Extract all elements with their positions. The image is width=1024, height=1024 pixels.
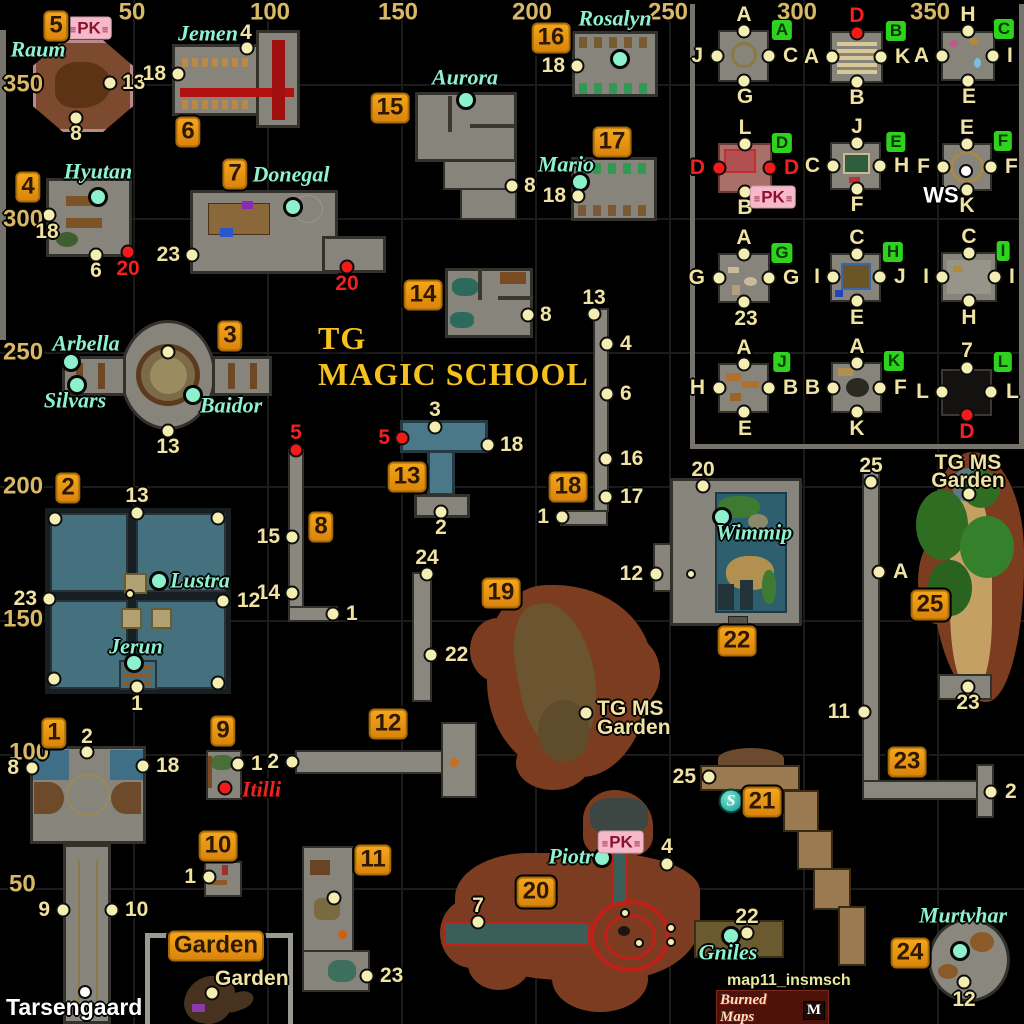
map-dot	[283, 197, 303, 217]
map-dot	[285, 755, 300, 770]
area-badge-23: 23	[886, 745, 929, 780]
map-dot	[936, 160, 951, 175]
room-22-ruin-2	[740, 580, 753, 610]
room-3-pillar-3	[228, 363, 235, 389]
area-badge-22: 22	[716, 624, 759, 659]
teleport-badge-i: I	[997, 241, 1010, 261]
map-dot	[666, 937, 676, 947]
label-rosalyn: Rosalyn	[578, 8, 651, 30]
map-dot	[960, 361, 975, 376]
room-11-item	[338, 930, 347, 939]
room-14-inner-wall-h	[498, 296, 533, 300]
label-j: J	[851, 116, 863, 137]
area-badge-1: 1	[39, 716, 68, 751]
map-dot	[105, 903, 120, 918]
corridor-12-item	[450, 758, 459, 767]
cave-20-center	[618, 926, 630, 936]
label-a: A	[893, 561, 908, 582]
map-dot	[872, 565, 887, 580]
map-dot	[48, 512, 63, 527]
map-dot	[185, 248, 200, 263]
label-18: 18	[543, 185, 566, 206]
cave-20-dark-patch	[590, 798, 648, 834]
label-2: 2	[81, 726, 93, 747]
gridline-vertical	[267, 0, 269, 1024]
teleport-badge-h: H	[883, 242, 903, 262]
room-16-bed-row-top	[579, 37, 651, 48]
label-1: 1	[346, 603, 358, 624]
pk-badge: PK	[599, 832, 643, 853]
map-canvas: TG MAGIC SCHOOL map11_insmsch Burned Map…	[0, 0, 1024, 1024]
cave-20-west-passage	[444, 922, 590, 946]
room-7-purple-item	[242, 201, 253, 209]
label-donegal: Donegal	[253, 164, 330, 186]
brand-mark-icon: M	[803, 1001, 825, 1020]
map-title-line2: MAGIC SCHOOL	[318, 358, 589, 390]
label-f: F	[894, 377, 907, 398]
room-10-item	[222, 865, 228, 875]
map-dot	[620, 908, 630, 918]
area-badge-12: 12	[367, 707, 410, 742]
room-14-inner-wall-v	[478, 268, 482, 300]
teleport-room-c-speck-1	[949, 40, 958, 47]
label-g: G	[689, 267, 705, 288]
label-16: 16	[620, 448, 643, 469]
room-7-blue-item	[220, 228, 233, 237]
label-e: E	[850, 307, 864, 328]
cave-25-tree-2	[960, 516, 1014, 578]
room-3-mosaic	[150, 357, 187, 394]
label-arbella: Arbella	[52, 333, 119, 355]
area-badge-6: 6	[173, 115, 202, 150]
map-dot	[857, 705, 872, 720]
map-dot	[326, 607, 341, 622]
label-11: 11	[828, 701, 850, 722]
label-a: A	[736, 4, 751, 25]
map-dot	[216, 594, 231, 609]
map-dot	[161, 345, 176, 360]
room-4-green-rug	[56, 232, 78, 247]
area-badge-19: 19	[480, 576, 523, 611]
room-1-stair-east	[111, 782, 141, 814]
map-dot	[984, 385, 999, 400]
label-25: 25	[673, 766, 696, 787]
room-9-bench	[208, 756, 212, 788]
label-6: 6	[620, 383, 632, 404]
label-350: 350	[910, 1, 950, 25]
label-10: 10	[125, 899, 148, 920]
room-15-inner-wall-v	[448, 96, 452, 132]
teleport-room-g-bone-2	[744, 277, 757, 286]
teleport-room-j-debris-1	[726, 373, 741, 381]
map-dot	[712, 381, 727, 396]
map-dot	[481, 438, 496, 453]
map-dot	[850, 26, 865, 41]
room-6-bench-row-top	[182, 58, 248, 67]
teleport-badge-j: J	[773, 352, 790, 372]
label-23: 23	[380, 965, 403, 986]
teleport-room-g-bone-3	[732, 285, 740, 295]
corridor-12-east-room	[441, 722, 477, 798]
map-dot	[762, 271, 777, 286]
label-250: 250	[3, 341, 43, 365]
map-dot	[103, 76, 118, 91]
room-4-table-bottom	[66, 218, 102, 228]
label-23: 23	[157, 244, 180, 265]
map-dot	[171, 67, 186, 82]
teleport-grid-bottom-wall	[690, 444, 1024, 449]
label-1: 1	[537, 506, 549, 527]
map-dot	[202, 870, 217, 885]
label-1: 1	[184, 866, 196, 887]
label-hyutan: Hyutan	[64, 161, 132, 183]
map-dot	[762, 381, 777, 396]
room-22-palm	[762, 570, 776, 604]
map-dot	[125, 589, 135, 599]
area-badge-13: 13	[386, 460, 429, 495]
map-dot	[874, 50, 889, 65]
label-d: D	[784, 157, 799, 178]
label-23: 23	[14, 588, 37, 609]
teleport-room-b-pews	[837, 39, 877, 74]
room-15-inner-wall-h	[470, 124, 514, 128]
teleport-room-c-speck-2	[969, 38, 979, 45]
map-dot	[579, 706, 594, 721]
label-20: 20	[691, 459, 714, 480]
label-garden: Garden	[931, 470, 1005, 491]
stairs-21-step-1	[783, 790, 819, 832]
label-e: E	[962, 86, 976, 107]
corridor-23-south	[862, 780, 979, 800]
label-20: 20	[335, 273, 358, 294]
teleport-room-i-speck	[953, 266, 962, 272]
area-badge-5: 5	[41, 9, 70, 44]
area-badge-11: 11	[352, 843, 393, 878]
area-badge-4: 4	[13, 170, 42, 205]
teleport-badge-k: K	[884, 351, 904, 371]
teleport-badge-c: C	[994, 19, 1014, 39]
map-dot	[826, 159, 841, 174]
label-6: 6	[90, 260, 102, 281]
label-50: 50	[9, 873, 36, 897]
map-dot	[600, 387, 615, 402]
map-dot	[986, 49, 1001, 64]
label-15: 15	[257, 526, 280, 547]
label-50: 50	[119, 1, 146, 25]
label-350: 350	[3, 73, 43, 97]
room-11-teal-rug	[328, 960, 356, 982]
map-dot	[505, 179, 520, 194]
map-dot	[428, 420, 443, 435]
map-dot	[873, 270, 888, 285]
label-150: 150	[3, 608, 43, 632]
label-24: 24	[415, 547, 438, 568]
label-b: B	[805, 377, 820, 398]
label-12: 12	[237, 590, 260, 611]
map-dot	[555, 510, 570, 525]
teleport-room-j-debris-3	[730, 393, 741, 401]
teleport-room-h-item	[835, 290, 843, 297]
label-aurora: Aurora	[432, 67, 498, 89]
area-badge-8: 8	[306, 510, 335, 545]
stairs-21-step-3	[813, 868, 851, 910]
map-dot	[42, 592, 57, 607]
label-25: 25	[859, 455, 882, 476]
teleport-badge-b: B	[886, 21, 906, 41]
label-piotr: Piotr	[548, 846, 593, 868]
map-dot	[218, 781, 233, 796]
label-h: H	[690, 377, 705, 398]
label-18: 18	[500, 434, 523, 455]
label-j: J	[894, 266, 906, 287]
label-g: G	[737, 86, 753, 107]
teleport-room-d-rug	[724, 149, 756, 173]
map-dot	[571, 189, 586, 204]
label-garden: Garden	[215, 968, 289, 989]
label-f: F	[851, 194, 864, 215]
label-c: C	[805, 155, 820, 176]
teleport-badge-e: E	[886, 132, 905, 152]
map-dot	[211, 511, 226, 526]
stairs-21-step-4	[838, 906, 866, 966]
room-3-pillar-4	[250, 363, 257, 389]
label-k: K	[959, 195, 974, 216]
map-dot	[826, 270, 841, 285]
label-a: A	[914, 45, 929, 66]
room-14-teal-rug-top	[452, 278, 478, 296]
credits-box: Burned Maps M Ver. 1.9.7 - 01	[716, 990, 829, 1024]
room-2-entry-step-2	[124, 673, 152, 677]
label-8: 8	[7, 757, 19, 778]
label-1: 1	[131, 693, 143, 714]
label-7: 7	[961, 340, 973, 361]
label-l: L	[1006, 381, 1019, 402]
cave-20-north-passage	[612, 846, 628, 906]
label-8: 8	[540, 304, 552, 325]
map-dot	[702, 770, 717, 785]
label-18: 18	[143, 63, 166, 84]
label-13: 13	[582, 287, 605, 308]
teleport-badge-g: G	[771, 243, 792, 263]
label-a: A	[849, 336, 864, 357]
label-a: A	[736, 227, 751, 248]
label-150: 150	[378, 1, 418, 25]
map-dot	[950, 941, 970, 961]
label-9: 9	[38, 899, 50, 920]
teleport-grid-right-wall	[1019, 4, 1024, 449]
label-5: 5	[378, 427, 390, 448]
garden-wall-west	[145, 935, 150, 1024]
label-baidor: Baidor	[200, 395, 262, 417]
label-lustra: Lustra	[170, 570, 230, 592]
label-4: 4	[620, 333, 632, 354]
label-jerun: Jerun	[109, 636, 163, 658]
area-badge-24: 24	[889, 936, 932, 971]
label-mario: Mario	[538, 154, 594, 176]
label-d: D	[849, 5, 864, 26]
map-dot	[231, 757, 246, 772]
room-2-quad-nw	[50, 513, 128, 592]
label-itilli: Itilli	[242, 779, 281, 801]
map-dot	[825, 50, 840, 65]
teleport-room-h-pit	[841, 263, 871, 290]
label-23: 23	[956, 692, 979, 713]
label-8: 8	[524, 175, 536, 196]
map-dot	[984, 785, 999, 800]
label-4: 4	[661, 836, 673, 857]
garden-flower-1	[192, 1004, 205, 1012]
label-h: H	[961, 307, 976, 328]
label-18: 18	[542, 55, 565, 76]
label-2: 2	[267, 751, 279, 772]
label-8: 8	[70, 123, 82, 144]
label-c: C	[783, 45, 798, 66]
map-dot	[666, 923, 676, 933]
stairs-21-step-2	[797, 830, 833, 870]
label-c: C	[849, 227, 864, 248]
room-14-wood-shelf	[500, 272, 526, 284]
map-dot	[149, 571, 169, 591]
label-k: K	[895, 46, 910, 67]
label-b: B	[849, 87, 864, 108]
map-dot	[634, 938, 644, 948]
map-dot	[600, 337, 615, 352]
map-dot	[599, 452, 614, 467]
area-badge-16: 16	[530, 21, 573, 56]
label-4: 4	[240, 22, 252, 43]
teleport-room-e-table	[843, 153, 870, 174]
area-badge-14: 14	[402, 278, 445, 313]
area-badge-9: 9	[208, 714, 237, 749]
room-14-teal-rug-bottom	[450, 312, 474, 328]
teleport-room-a-rug	[731, 42, 757, 68]
room-2-altar-sw	[121, 608, 142, 629]
teleport-badge-a: A	[772, 20, 792, 40]
label-ws: WS	[923, 185, 958, 207]
label-23: 23	[734, 308, 757, 329]
label-18: 18	[35, 221, 58, 242]
teleport-room-g-bone-1	[728, 267, 739, 273]
area-badge-garden: Garden	[166, 929, 266, 964]
teleport-badge-d: D	[772, 133, 792, 153]
map-dot	[873, 381, 888, 396]
label-13: 13	[125, 485, 148, 506]
label-tarsengaard: Tarsengaard	[6, 996, 142, 1019]
label-h: H	[894, 155, 909, 176]
area-badge-20: 20	[515, 875, 558, 910]
label-12: 12	[620, 563, 643, 584]
map-dot	[47, 672, 62, 687]
label-1: 1	[251, 753, 263, 774]
map-dot	[988, 270, 1003, 285]
area-badge-3: 3	[215, 319, 244, 354]
label-100: 100	[250, 1, 290, 25]
area-badge-7: 7	[220, 157, 249, 192]
label-l: L	[739, 117, 752, 138]
room-1-stair-west	[34, 782, 64, 814]
label-l: L	[916, 381, 929, 402]
label-j: J	[691, 45, 703, 66]
room-17-bed-row-bottom	[578, 205, 650, 216]
room-22-ruin-1	[718, 584, 734, 610]
map-dot	[56, 903, 71, 918]
map-dot	[935, 49, 950, 64]
room-24-rust-2	[938, 964, 958, 979]
map-dot	[686, 569, 696, 579]
gridline-vertical	[401, 0, 403, 1024]
map-dot	[360, 969, 375, 984]
map-dot	[710, 49, 725, 64]
room-6-bench-row-bottom	[182, 100, 248, 109]
pk-badge: PK	[751, 187, 795, 208]
map-dot	[826, 381, 841, 396]
label-a: A	[804, 46, 819, 67]
map-dot	[660, 857, 675, 872]
label-e: E	[960, 117, 974, 138]
area-badge-15: 15	[369, 91, 412, 126]
label-k: K	[849, 418, 864, 439]
label-200: 200	[3, 475, 43, 499]
map-dot	[285, 530, 300, 545]
map-dot	[712, 161, 727, 176]
map-dot	[763, 161, 778, 176]
label-22: 22	[445, 644, 468, 665]
area-badge-10: 10	[197, 829, 240, 864]
map-dot	[136, 759, 151, 774]
pk-badge: PK	[67, 18, 111, 39]
room-3-pillar-2	[98, 363, 105, 389]
map-dot	[935, 270, 950, 285]
room-24-rust-1	[970, 932, 994, 952]
label-i: I	[814, 266, 820, 287]
map-dot	[984, 160, 999, 175]
area-badge-2: 2	[53, 471, 82, 506]
room-3-east-wing	[212, 356, 272, 396]
label-2: 2	[1005, 781, 1017, 802]
area-badge-25: 25	[909, 588, 952, 623]
room-7-big-table	[208, 203, 270, 235]
label-17: 17	[620, 486, 643, 507]
teleport-badge-l: L	[994, 352, 1012, 372]
room-11-crate	[310, 860, 330, 875]
map-dot	[130, 506, 145, 521]
room-6-altar-carpet	[272, 40, 285, 120]
label-b: B	[783, 377, 798, 398]
label-wimmip: Wimmip	[716, 522, 792, 544]
map-dot	[456, 90, 476, 110]
map-dot	[712, 271, 727, 286]
map-dot	[873, 159, 888, 174]
teleport-badge-f: F	[994, 131, 1012, 151]
corridor-24	[412, 572, 432, 702]
label-i: I	[1007, 45, 1013, 66]
area-badge-18: 18	[547, 470, 590, 505]
label-jemen: Jemen	[178, 23, 238, 45]
label-a: A	[736, 337, 751, 358]
map-dot	[327, 891, 342, 906]
label-2: 2	[435, 517, 447, 538]
room-13-stem	[427, 450, 455, 496]
label-c: C	[961, 226, 976, 247]
map-dot	[211, 676, 226, 691]
map-dot	[935, 385, 950, 400]
teleport-room-k-splotch	[846, 378, 869, 397]
corridor-23	[862, 468, 880, 782]
label-d: D	[959, 421, 974, 442]
label-250: 250	[648, 1, 688, 25]
label-murtvhar: Murtvhar	[919, 905, 1007, 927]
label-f: F	[917, 156, 930, 177]
